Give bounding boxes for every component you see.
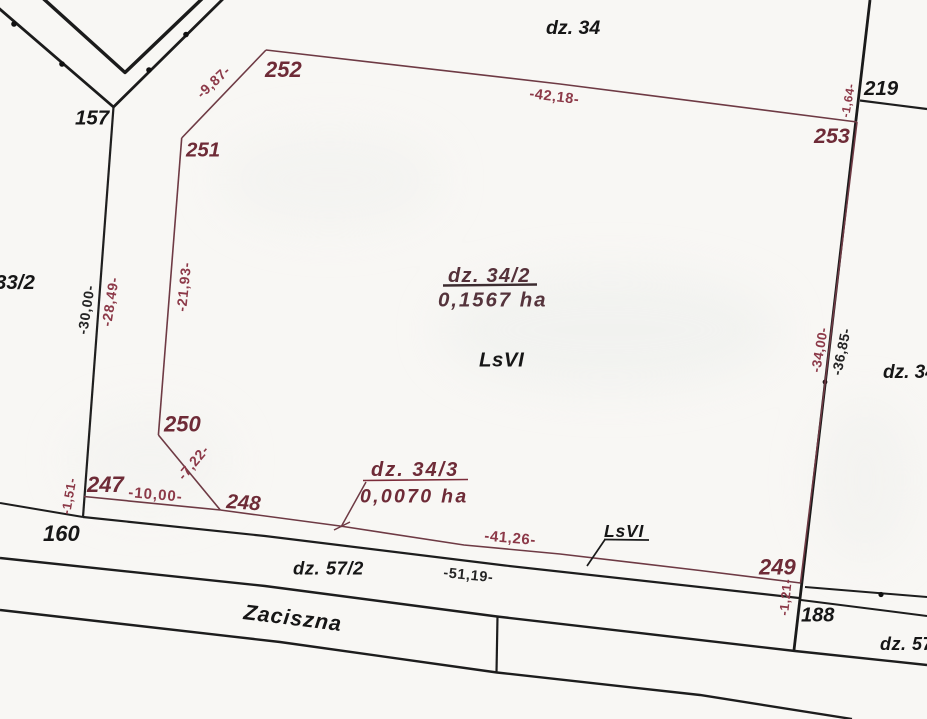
svg-text:0,0070 ha: 0,0070 ha (360, 486, 469, 508)
svg-text:251: 251 (185, 139, 220, 162)
svg-text:dz. 57: dz. 57 (880, 634, 927, 654)
svg-text:LsVI: LsVI (479, 349, 525, 372)
svg-text:188: 188 (801, 605, 835, 627)
svg-text:249: 249 (758, 555, 796, 580)
svg-text:dz. 34: dz. 34 (883, 362, 927, 383)
svg-text:247: 247 (86, 472, 125, 497)
svg-text:253: 253 (813, 124, 850, 148)
svg-text:dz. 34/3: dz. 34/3 (371, 459, 459, 481)
svg-text:252: 252 (264, 57, 302, 82)
svg-text:dz. 34: dz. 34 (546, 17, 600, 39)
svg-text:dz. 57/2: dz. 57/2 (293, 558, 364, 579)
svg-text:LsVI: LsVI (604, 521, 644, 541)
svg-text:0,1567 ha: 0,1567 ha (438, 289, 547, 312)
svg-text:250: 250 (163, 412, 201, 437)
svg-text:219: 219 (863, 77, 899, 100)
svg-text:160: 160 (43, 521, 80, 546)
svg-text:248: 248 (225, 490, 262, 515)
svg-text:33/2: 33/2 (0, 271, 35, 294)
svg-text:157: 157 (75, 107, 111, 130)
